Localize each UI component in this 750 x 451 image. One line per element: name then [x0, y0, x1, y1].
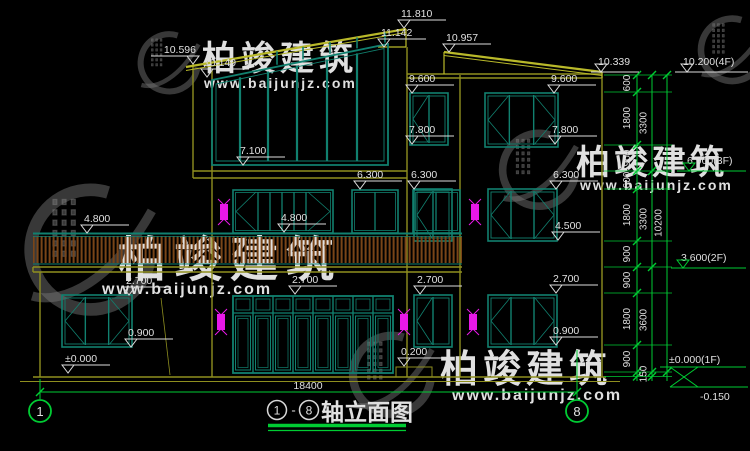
level-marker-value: 4.800: [281, 212, 307, 224]
floor-level-label: ±0.000(1F): [669, 354, 720, 366]
level-marker-value: 0.900: [128, 327, 154, 339]
level-marker-value: 10.957: [446, 32, 478, 44]
level-marker-value: 11.142: [381, 27, 412, 39]
overall-width-text: 18400: [293, 380, 322, 392]
axis-bubble-1-label: 1: [36, 404, 43, 419]
level-marker-value: 0.900: [553, 325, 579, 337]
lamp-body: [217, 314, 225, 330]
level-marker-value: 11.810: [401, 8, 432, 20]
title-text: 轴立面图: [321, 399, 413, 425]
dim-segment-label: 600: [622, 74, 633, 91]
level-marker-value: 2.700: [417, 274, 443, 286]
level-marker-value: 6.300: [357, 169, 383, 181]
title-axis-8: 8: [306, 404, 313, 418]
dim-segment-label: 900: [622, 245, 633, 262]
level-marker-value: 6.300: [411, 169, 437, 181]
lamp-body: [400, 314, 408, 330]
level-marker-value: 10.596: [164, 44, 196, 56]
level-marker-value: 9.600: [551, 73, 577, 85]
dim-segment-label: 3600: [639, 308, 650, 331]
level-marker-value: 4.800: [84, 213, 110, 225]
balcony-railing: [33, 234, 462, 265]
lamp-body: [471, 204, 479, 220]
level-marker-value: 6.300: [553, 169, 579, 181]
floor-level-label: -0.150: [700, 391, 730, 403]
cad-elevation-canvas: 柏竣建筑www.baijunjz.com柏竣建筑www.baijunjz.com…: [0, 0, 750, 451]
level-marker-value: 7.100: [240, 145, 266, 157]
level-marker-value: 4.500: [555, 220, 581, 232]
dim-segment-label: 1800: [622, 106, 633, 129]
level-marker-value: ±0.000: [65, 353, 97, 365]
title-axis-1: 1: [274, 404, 281, 418]
level-marker-value: 2.700: [553, 273, 579, 285]
dim-segment-label: 900: [622, 271, 633, 288]
dim-segment-label: 150: [639, 365, 650, 382]
dim-segment-label: 900: [622, 350, 633, 367]
dim-segment-label: 3300: [639, 111, 650, 134]
floor-level-label: 10.200(4F): [683, 56, 734, 68]
lamp-body: [469, 314, 477, 330]
dim-segment-label: 600: [622, 171, 633, 188]
dim-segment-label: 1800: [622, 203, 633, 226]
dim-segment-label: 10200: [654, 209, 665, 237]
lamp-body: [220, 204, 228, 220]
dim-segment-label: 1800: [622, 307, 633, 330]
watermark-url: www.baijunjz.com: [451, 387, 622, 404]
railing-slats: [33, 236, 462, 263]
axis-bubble-8-label: 8: [573, 404, 580, 419]
level-marker-value: 7.800: [552, 124, 578, 136]
title-separator: -: [291, 403, 295, 418]
watermark-brand: 柏竣建筑: [440, 349, 612, 391]
dim-segment-label: 3300: [639, 207, 650, 230]
level-marker-value: 7.800: [409, 124, 435, 136]
level-marker-value: 9.600: [409, 73, 435, 85]
level-marker-value: 0.200: [401, 346, 427, 358]
level-marker-value: 10.149: [204, 57, 236, 69]
level-marker-value: 2.700: [292, 274, 318, 286]
dim-segment-label: 900: [622, 149, 633, 166]
level-marker-value: 2.700: [126, 275, 152, 287]
floor-level-label: 10.339: [598, 56, 630, 68]
